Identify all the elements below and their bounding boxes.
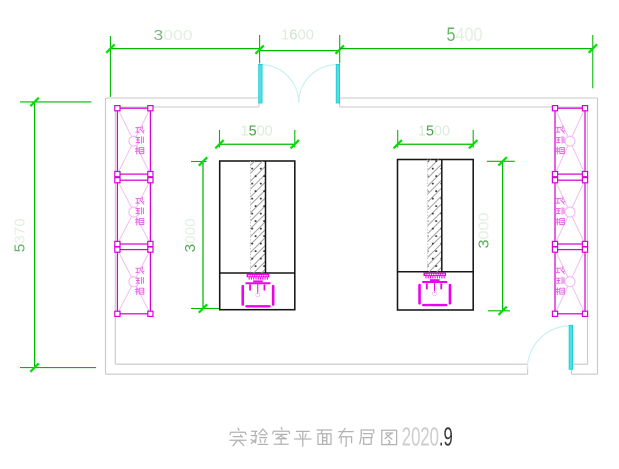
svg-text:1500: 1500 <box>241 123 273 140</box>
svg-text:3000: 3000 <box>477 213 493 249</box>
svg-text:1600: 1600 <box>281 27 314 44</box>
svg-text:3000: 3000 <box>154 27 193 44</box>
svg-text:3000: 3000 <box>183 218 199 252</box>
svg-text:5400: 5400 <box>447 25 483 46</box>
svg-text:1500: 1500 <box>418 123 450 140</box>
svg-text:5370: 5370 <box>12 218 29 252</box>
svg-text:2020.9: 2020.9 <box>402 424 453 452</box>
